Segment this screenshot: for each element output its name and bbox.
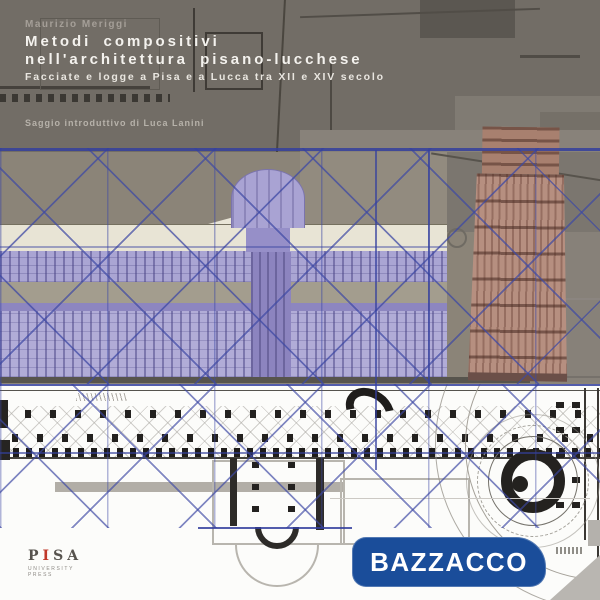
tower-plan-stair: [512, 476, 528, 492]
leaning-tower-elevation: [468, 126, 571, 381]
analysis-horizontal-line: [0, 246, 447, 248]
analysis-horizontal-line: [0, 148, 600, 151]
tower-shaft: [468, 173, 570, 381]
cathedral-dome: [231, 169, 305, 228]
map-dashed-band: [0, 94, 170, 102]
chapel-column-row: [252, 462, 259, 522]
plan-guide-line: [330, 498, 590, 499]
map-line: [520, 55, 580, 58]
cathedral-dome-drum: [246, 224, 290, 252]
intro-credit: Saggio introduttivo di Luca Lanini: [25, 118, 205, 128]
cathedral-stringcourse-band: [0, 282, 447, 303]
seller-badge-label: BAZZACCO: [370, 547, 528, 578]
chapel-wall: [230, 458, 237, 526]
analysis-horizontal-line: [0, 384, 600, 386]
chapel-column-row: [288, 462, 295, 522]
cathedral-crossing-tower: [251, 252, 291, 377]
book-title-line2: nell'architettura pisano-lucchese: [25, 51, 363, 68]
analysis-vertical-line: [428, 150, 430, 384]
cathedral-elevation: [0, 160, 447, 383]
author-name: Maurizio Meriggi: [25, 19, 128, 30]
publisher-tagline: UNIVERSITY PRESS: [28, 566, 98, 578]
photo-panel-grid: [565, 232, 600, 382]
plan-wall-block: [0, 440, 10, 460]
publisher-logo: PISA UNIVERSITY PRESS: [28, 548, 98, 578]
map-circle: [447, 228, 467, 248]
tower-base: [468, 372, 567, 381]
analysis-horizontal-line: [0, 452, 600, 454]
map-block: [420, 0, 515, 38]
cathedral-arcade-band: [0, 251, 447, 282]
plan-wall-block: [0, 400, 8, 428]
book-subtitle: Facciate e logge a Pisa e a Lucca tra XI…: [25, 71, 385, 83]
publisher-red-i: I: [43, 548, 54, 564]
book-cover: Maurizio Meriggi Metodi compositivi nell…: [0, 0, 600, 600]
cathedral-lower-arcade-band: [0, 303, 447, 377]
chapel-wall: [316, 458, 324, 530]
tower-plan-ring: [501, 449, 565, 513]
analysis-horizontal-line: [198, 527, 352, 529]
book-title-line1: Metodi compositivi: [25, 33, 220, 50]
seller-badge: BAZZACCO: [352, 537, 546, 587]
photo-edge: [588, 520, 600, 546]
tower-belfry: [482, 126, 560, 174]
handwritten-annotation: [76, 393, 128, 401]
publisher-name: PISA: [28, 548, 98, 564]
ground-baseline: [0, 377, 530, 383]
analysis-vertical-line: [375, 150, 377, 470]
scale-annotation: [556, 547, 584, 554]
